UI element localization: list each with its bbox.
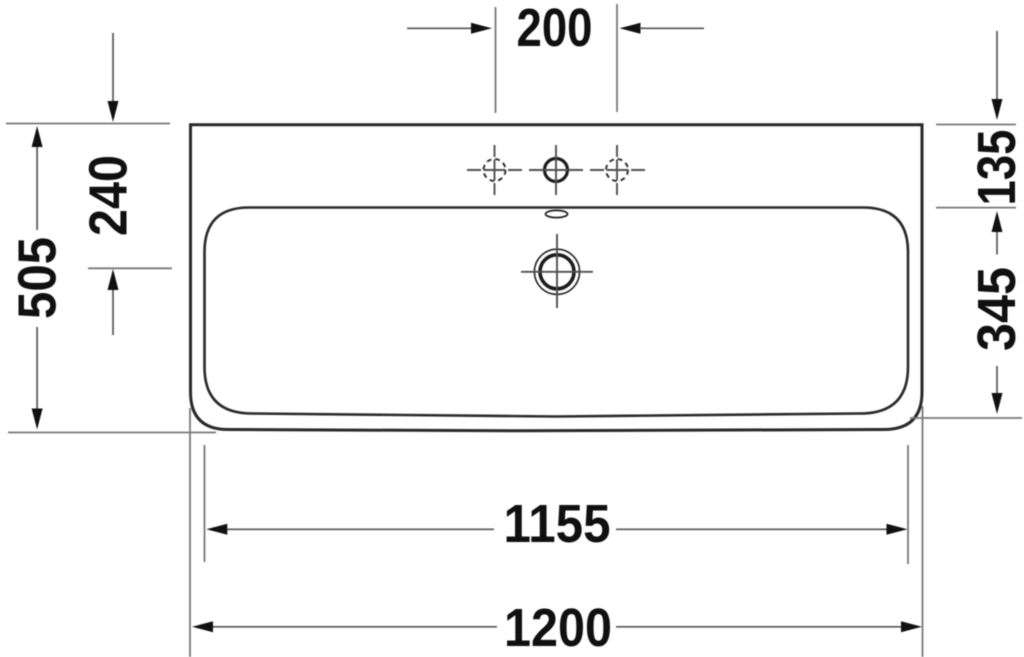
svg-text:1200: 1200 xyxy=(504,598,612,657)
svg-text:345: 345 xyxy=(967,267,1024,351)
svg-text:505: 505 xyxy=(8,237,68,319)
svg-text:135: 135 xyxy=(967,130,1024,206)
svg-text:200: 200 xyxy=(517,0,593,58)
svg-text:1155: 1155 xyxy=(504,494,611,554)
svg-text:240: 240 xyxy=(79,155,139,236)
